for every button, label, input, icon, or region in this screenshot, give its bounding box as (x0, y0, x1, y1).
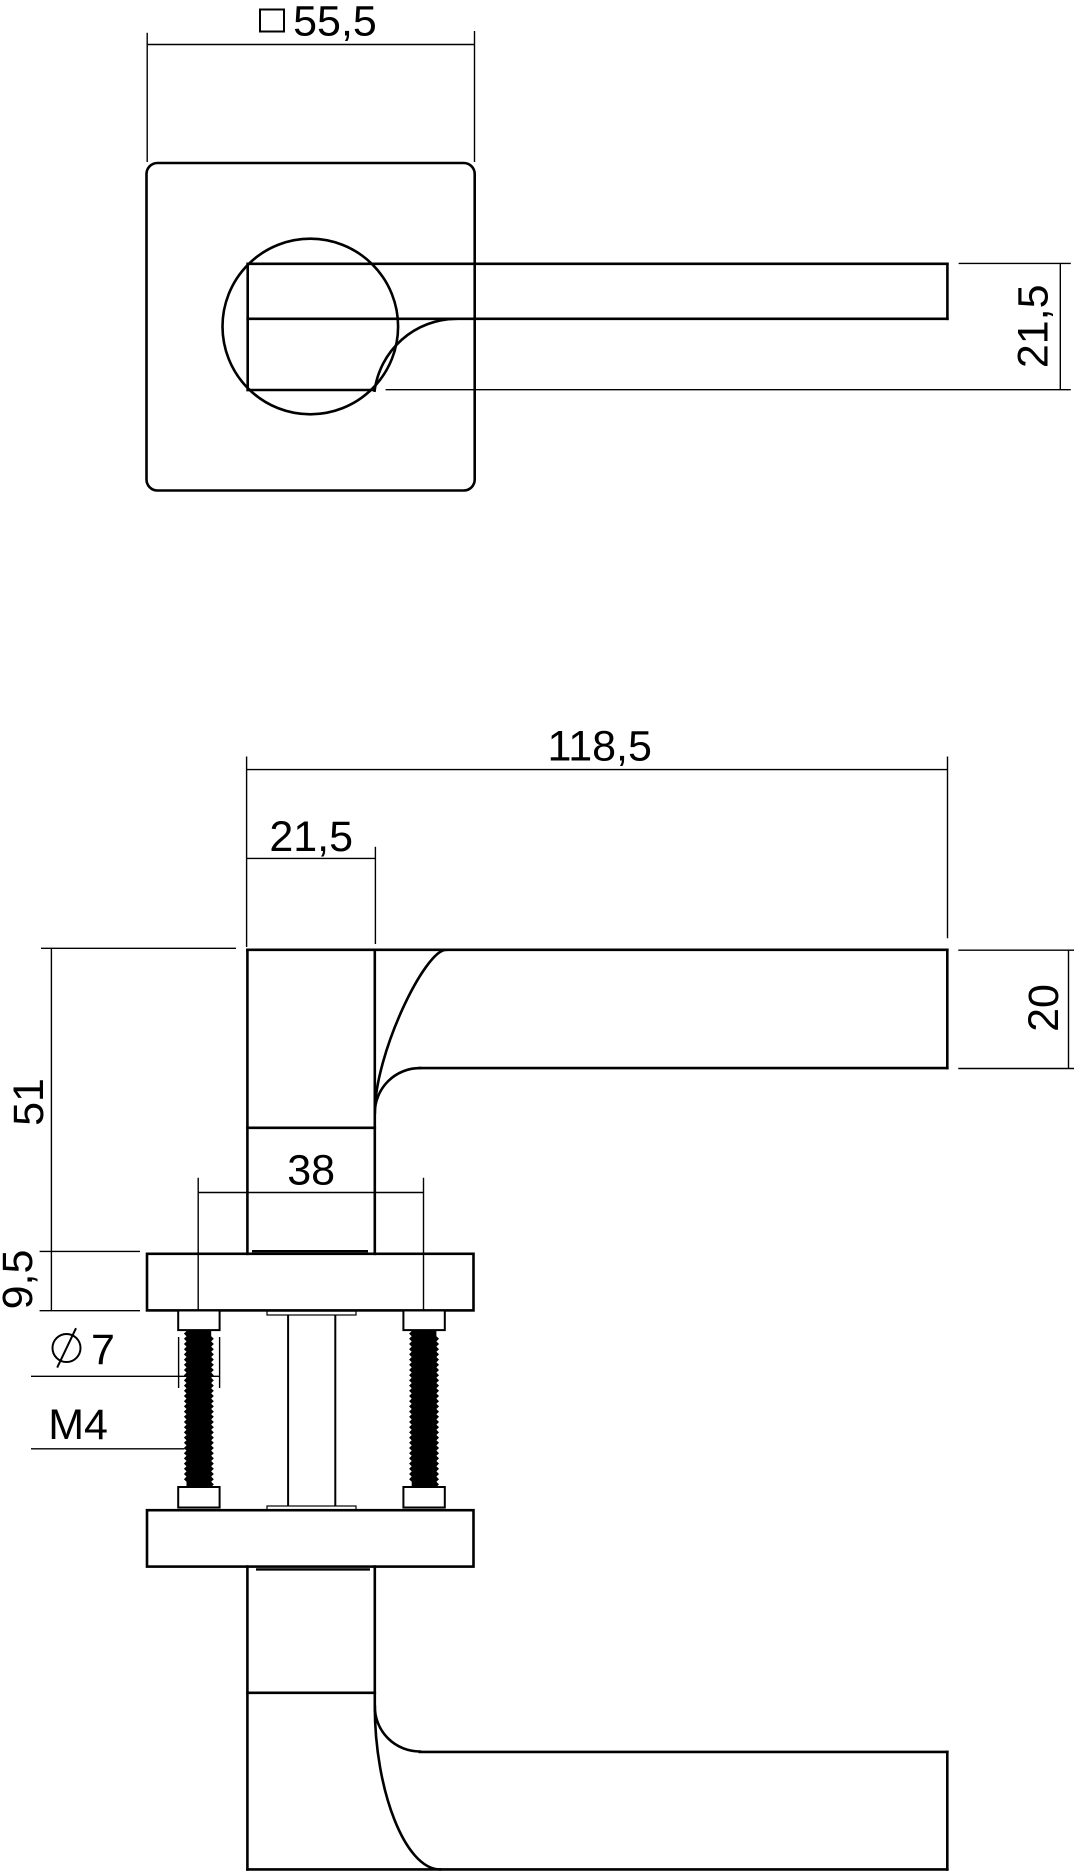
svg-text:51: 51 (5, 1078, 53, 1126)
svg-text:21,5: 21,5 (269, 813, 353, 861)
svg-text:7: 7 (91, 1326, 115, 1374)
svg-text:55,5: 55,5 (293, 0, 377, 46)
svg-text:9,5: 9,5 (0, 1250, 42, 1310)
svg-text:20: 20 (1020, 984, 1068, 1032)
svg-text:M4: M4 (48, 1401, 108, 1449)
svg-text:38: 38 (287, 1147, 335, 1195)
svg-text:118,5: 118,5 (547, 723, 651, 771)
svg-text:21,5: 21,5 (1010, 284, 1058, 368)
